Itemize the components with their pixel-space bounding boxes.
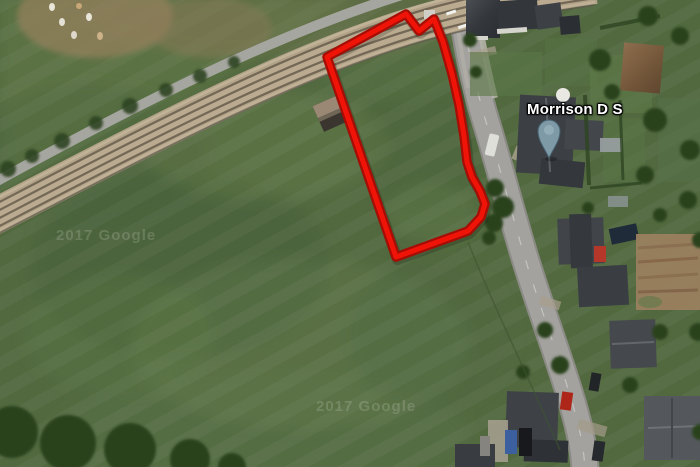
gray-car [480,436,490,456]
satellite-dome [556,88,570,102]
house-mid-3 [609,319,657,369]
google-watermark: 2017 Google [316,398,416,415]
satellite-map[interactable]: Morrison D S 2017 Google 2017 Google [0,0,700,467]
google-watermark: 2017 Google [56,227,156,244]
house-bottom-right [644,396,700,460]
greenhouse [600,138,622,152]
brown-roof-building [620,42,664,93]
red-car [594,246,606,262]
place-label[interactable]: Morrison D S [527,101,623,118]
allotment-dirt-garden [636,234,700,310]
blue-car [505,430,517,454]
black-car [519,428,532,456]
house-mid-2 [577,265,629,308]
